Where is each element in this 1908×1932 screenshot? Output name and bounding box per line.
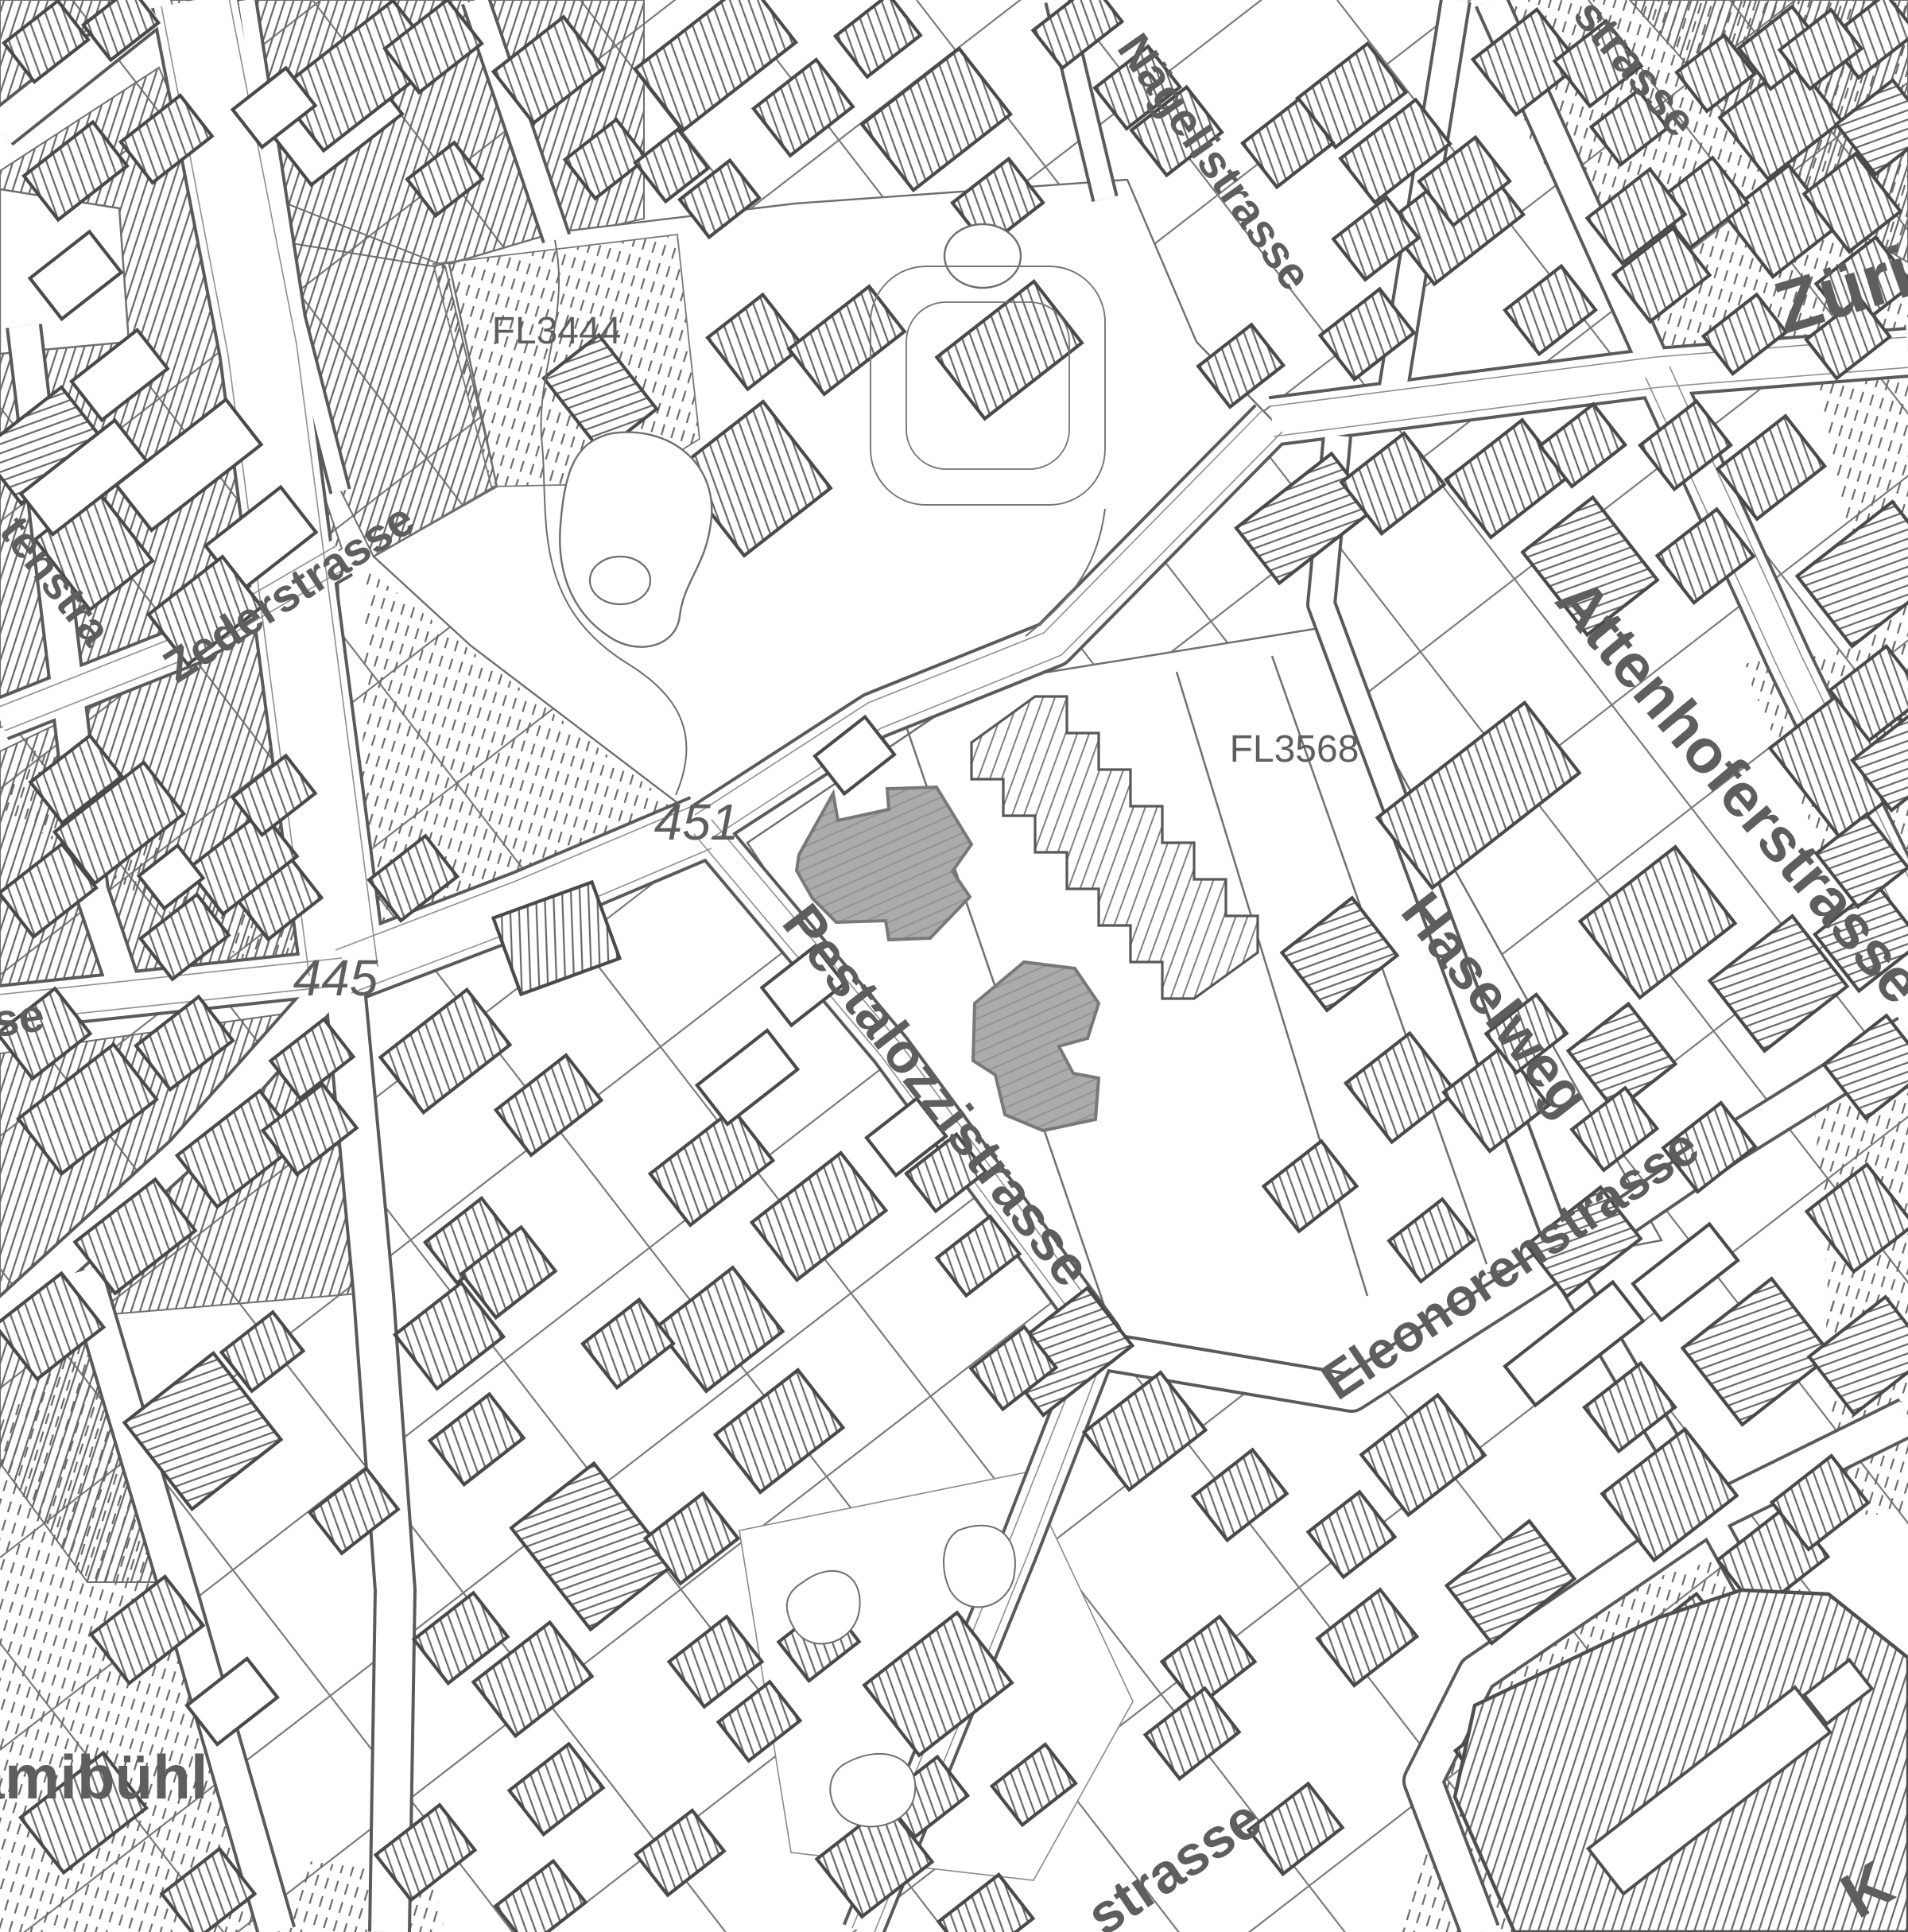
svg-text:FL3444: FL3444 — [492, 310, 622, 352]
svg-text:ämibühl: ämibühl — [0, 1742, 208, 1812]
svg-text:445: 445 — [293, 949, 378, 1007]
svg-text:FL3568: FL3568 — [1230, 728, 1359, 770]
svg-text:se: se — [0, 989, 48, 1047]
svg-text:451: 451 — [654, 793, 739, 851]
